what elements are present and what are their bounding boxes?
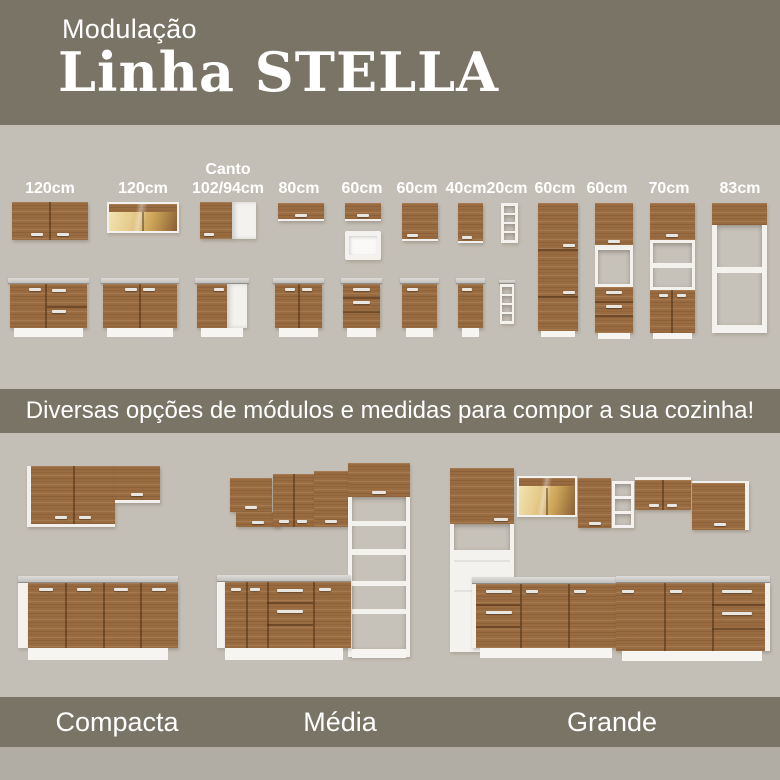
plinth — [406, 328, 433, 337]
door-handle — [325, 520, 337, 523]
door-gap — [103, 583, 105, 648]
tall-cabinet — [348, 463, 410, 657]
door-handle — [131, 493, 143, 496]
door-handle — [114, 588, 128, 591]
wall-cabinet — [273, 474, 314, 527]
oven-niche — [598, 250, 630, 284]
door-handle — [462, 236, 472, 239]
door-handle — [245, 506, 257, 509]
base-cabinet — [225, 582, 351, 648]
module-wall-120-double — [12, 202, 88, 240]
door-gap — [65, 583, 67, 648]
top-panel — [712, 203, 767, 225]
kitchen-media — [217, 463, 412, 660]
door-handle — [670, 590, 682, 593]
door-handle — [29, 288, 41, 291]
drawer-gap — [47, 306, 87, 308]
module-base-60-door — [402, 284, 437, 328]
base-cabinet — [28, 583, 178, 648]
door-handle — [231, 588, 241, 591]
module-wall-80 — [278, 203, 324, 221]
door-gap — [73, 466, 75, 524]
kitchen-grande — [450, 465, 770, 661]
bottom-strip — [0, 747, 780, 780]
door-handle — [494, 518, 508, 521]
door-panel — [348, 463, 410, 497]
countertop — [616, 576, 770, 583]
door-handle — [302, 288, 312, 291]
door-handle — [649, 504, 659, 507]
drawer-handle — [606, 291, 622, 294]
door-gap — [142, 212, 144, 231]
door-handle — [125, 288, 137, 291]
door-panel — [650, 203, 695, 240]
door-panel — [200, 202, 232, 239]
door-handle — [285, 288, 295, 291]
banner-text: Diversas opções de módulos e medidas par… — [0, 389, 780, 433]
door-gap — [267, 582, 269, 648]
door-gap — [139, 284, 141, 328]
wall-cabinet — [27, 466, 115, 527]
door-gap — [298, 284, 300, 328]
module-wall-120-glass — [107, 202, 179, 233]
door-handle — [279, 520, 289, 523]
wall-cabinet — [230, 478, 272, 512]
door-handle — [152, 588, 166, 591]
drawer-handle — [722, 612, 752, 615]
door-handle — [204, 233, 214, 236]
drawer-gap — [476, 604, 520, 606]
module-base-120-doors — [103, 284, 177, 328]
drawer-gap — [267, 624, 313, 626]
plinth — [352, 649, 406, 658]
plinth — [28, 648, 168, 660]
kitchen-label-grande: Grande — [532, 697, 692, 747]
module-base-80 — [275, 284, 322, 328]
door-handle — [407, 288, 418, 291]
module-base-60-drawers — [343, 284, 380, 328]
plinth — [622, 651, 762, 661]
drawer-gap — [712, 628, 765, 630]
drawer-gap — [595, 315, 633, 317]
door-handle — [574, 590, 586, 593]
module-fridge-frame-83 — [712, 203, 767, 333]
wall-cabinet — [635, 477, 691, 510]
module-wall-60-door — [402, 203, 438, 241]
module-base-canto — [197, 284, 247, 328]
shelf — [653, 263, 692, 268]
door-gap — [671, 290, 673, 333]
drawer-handle — [353, 301, 370, 304]
oven-niche — [454, 524, 510, 550]
drawer-gap — [343, 297, 380, 299]
door-handle — [250, 588, 260, 591]
door-gap — [49, 202, 51, 240]
corner-shelf-unit — [612, 481, 634, 528]
wall-cabinet — [115, 466, 160, 503]
shelf-niche — [504, 206, 515, 213]
module-wall-40 — [458, 203, 483, 243]
plinth — [14, 328, 83, 337]
footer-band: Compacta Média Grande — [0, 697, 780, 747]
banner-band: Diversas opções de módulos e medidas par… — [0, 389, 780, 433]
drawer-handle — [277, 589, 303, 592]
plinth — [541, 331, 575, 337]
shelf — [352, 549, 406, 555]
door-handle — [563, 291, 575, 294]
door-handle — [372, 491, 386, 494]
open-interior — [717, 225, 762, 325]
door-handle — [666, 234, 678, 237]
door-handle — [589, 522, 601, 525]
door-handle — [677, 294, 686, 297]
plinth — [480, 648, 612, 658]
door-panel — [450, 468, 514, 524]
door-gap — [538, 249, 578, 251]
door-panel — [595, 203, 633, 247]
door-handle — [714, 523, 726, 526]
door-handle — [622, 590, 634, 593]
door-gap — [568, 584, 570, 648]
door-panel — [197, 284, 227, 328]
shelf — [352, 609, 406, 614]
module-wall-canto — [200, 202, 256, 239]
module-size-label: 83cm — [685, 156, 780, 198]
shelf-niche — [504, 233, 515, 240]
wall-cabinet — [314, 471, 348, 527]
door-gap — [140, 583, 142, 648]
door-handle — [526, 590, 538, 593]
shelf-niche — [615, 499, 631, 511]
door-handle — [297, 520, 307, 523]
drawer-gap — [343, 311, 380, 313]
door-handle — [252, 521, 264, 524]
plinth — [598, 333, 630, 339]
countertop — [217, 575, 351, 582]
module-base-120-door-drawers — [10, 284, 87, 328]
plinth — [225, 648, 343, 660]
door-gap — [313, 582, 315, 648]
corner-return-panel — [232, 202, 256, 239]
door-handle — [659, 294, 668, 297]
drawer-handle — [486, 590, 512, 593]
door-handle — [79, 516, 91, 519]
door-handle — [39, 588, 53, 591]
plinth — [462, 328, 479, 337]
open-interior — [352, 497, 406, 649]
plinth — [653, 333, 692, 339]
door-gap — [664, 583, 666, 651]
shelf-niche — [504, 215, 515, 222]
drawer-handle — [52, 310, 66, 313]
drawer-handle — [277, 610, 303, 613]
shelf-niche — [504, 224, 515, 231]
door-handle — [214, 288, 224, 291]
kitchen-label-compacta: Compacta — [37, 697, 197, 747]
door-gap — [246, 582, 248, 648]
module-pantry-60 — [538, 203, 578, 331]
door-handle — [462, 288, 472, 291]
module-shelf-base-20 — [500, 284, 514, 324]
module-tower-60 — [595, 203, 633, 333]
plinth — [347, 328, 376, 337]
door-handle — [319, 588, 331, 591]
door-handle — [667, 504, 677, 507]
label-line2: 83cm — [685, 179, 780, 198]
shelf — [717, 267, 762, 273]
shelf-niche — [502, 296, 512, 303]
plinth — [201, 328, 243, 337]
glass-wall-cabinet — [517, 476, 577, 517]
drawer-handle — [606, 305, 622, 308]
drawer-gap — [476, 626, 520, 628]
page-title: Linha STELLA — [58, 40, 499, 104]
drawer-handle — [486, 611, 512, 614]
door-gap — [520, 584, 522, 648]
plinth — [279, 328, 318, 337]
drawer-handle — [353, 288, 370, 291]
door-handle — [407, 234, 418, 237]
header-band: Modulação Linha STELLA — [0, 0, 780, 125]
wall-cabinet — [692, 481, 749, 530]
door-handle — [57, 233, 69, 236]
door-handle — [55, 516, 67, 519]
plinth — [107, 328, 173, 337]
side-panel — [18, 583, 28, 648]
base-cabinet — [472, 584, 618, 648]
shelf-niche — [615, 484, 631, 496]
shelf-niche — [615, 514, 631, 525]
door-handle — [295, 214, 307, 217]
product-image: Modulação Linha STELLA 120cm 120cm Canto… — [0, 0, 780, 780]
door-gap — [546, 488, 548, 515]
shelf-niche — [502, 314, 512, 321]
drawer-gap — [595, 301, 633, 303]
door-handle — [608, 240, 620, 243]
door-gap — [712, 583, 714, 651]
module-white-box-60 — [345, 231, 381, 260]
kitchen-compacta — [18, 460, 180, 662]
kitchen-label-media: Média — [260, 697, 420, 747]
module-wall-60-flip — [345, 203, 381, 221]
module-tower-70 — [650, 203, 695, 333]
shelf — [352, 521, 406, 526]
shelf — [352, 581, 406, 586]
base-cabinet — [616, 583, 770, 651]
door-handle — [563, 244, 575, 247]
side-panel — [217, 582, 225, 648]
door-handle — [143, 288, 155, 291]
module-shelf-20 — [501, 203, 518, 243]
module-base-40 — [458, 284, 483, 328]
box-interior — [349, 236, 377, 255]
drawer-gap — [712, 604, 765, 606]
door-gap — [293, 474, 295, 527]
countertop — [18, 576, 178, 583]
countertop — [472, 577, 618, 584]
door-gap — [662, 480, 664, 510]
door-handle — [77, 588, 91, 591]
door-handle — [357, 214, 369, 217]
drawer-gap — [267, 602, 313, 604]
drawer-handle — [52, 289, 66, 292]
shelf-niche — [502, 305, 512, 312]
door-handle — [31, 233, 43, 236]
door-gap — [538, 296, 578, 298]
panel-seam — [454, 560, 510, 562]
wall-cabinet — [578, 478, 611, 528]
shelf-niche — [502, 287, 512, 294]
drawer-handle — [722, 590, 752, 593]
corner-return-panel — [227, 284, 247, 328]
